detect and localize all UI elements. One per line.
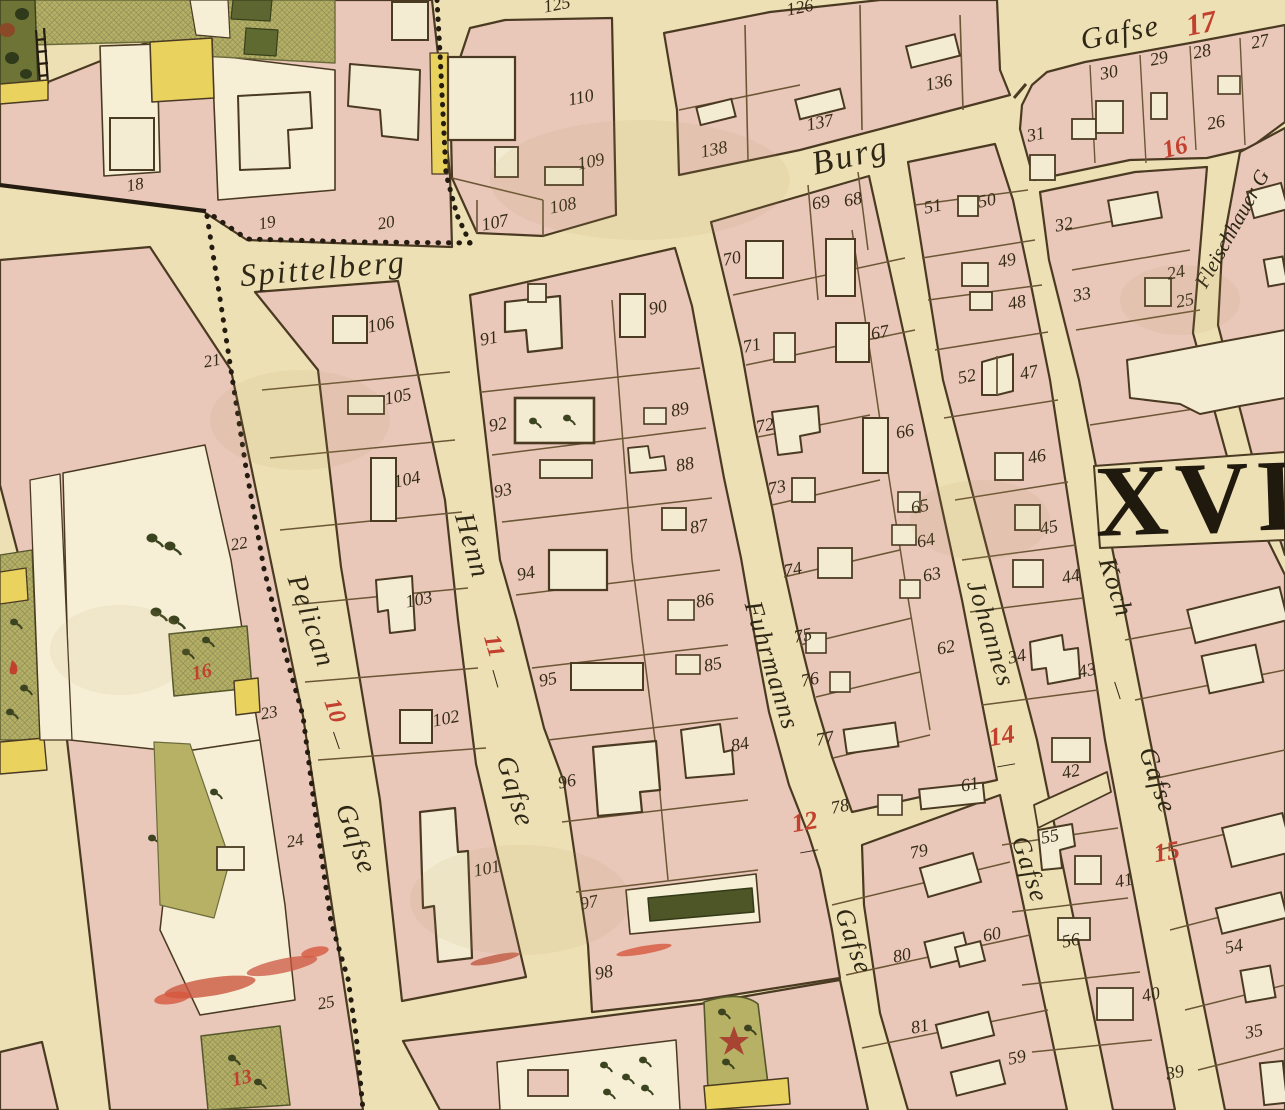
svg-text:31: 31 [1024, 123, 1046, 146]
svg-text:70: 70 [721, 247, 742, 270]
svg-text:75: 75 [792, 624, 813, 647]
svg-text:60: 60 [981, 923, 1002, 946]
svg-text:XVI: XVI [1093, 439, 1285, 559]
svg-text:—: — [797, 838, 820, 863]
svg-text:14: 14 [986, 719, 1017, 752]
svg-text:32: 32 [1052, 213, 1074, 236]
svg-text:33: 33 [1070, 283, 1092, 306]
svg-text:85: 85 [702, 653, 723, 676]
svg-text:61: 61 [959, 773, 980, 796]
svg-text:48: 48 [1006, 291, 1027, 314]
svg-text:35: 35 [1242, 1020, 1264, 1043]
svg-text:76: 76 [799, 668, 820, 691]
svg-text:25: 25 [316, 992, 336, 1014]
svg-text:42: 42 [1060, 760, 1081, 783]
svg-text:89: 89 [669, 398, 690, 421]
svg-text:50: 50 [976, 189, 997, 212]
svg-text:79: 79 [908, 840, 929, 863]
svg-text:12: 12 [789, 805, 820, 838]
svg-text:59: 59 [1006, 1046, 1027, 1069]
svg-text:95: 95 [537, 668, 558, 691]
svg-text:68: 68 [842, 188, 863, 211]
svg-text:43: 43 [1076, 659, 1097, 682]
svg-text:98: 98 [593, 961, 614, 984]
svg-text:69: 69 [810, 191, 831, 214]
svg-text:41: 41 [1113, 869, 1134, 892]
svg-text:40: 40 [1140, 983, 1161, 1006]
svg-text:46: 46 [1026, 445, 1047, 468]
svg-text:62: 62 [935, 636, 956, 659]
svg-text:30: 30 [1097, 61, 1119, 84]
svg-text:72: 72 [754, 414, 775, 437]
svg-text:90: 90 [647, 296, 668, 319]
svg-text:80: 80 [891, 944, 912, 967]
svg-text:23: 23 [259, 702, 279, 724]
svg-text:52: 52 [956, 365, 977, 388]
svg-text:71: 71 [741, 334, 762, 357]
svg-text:92: 92 [487, 413, 508, 436]
svg-text:73: 73 [766, 476, 787, 499]
svg-text:91: 91 [478, 327, 499, 350]
svg-text:56: 56 [1060, 929, 1081, 952]
svg-text:66: 66 [894, 420, 915, 443]
svg-text:93: 93 [492, 479, 513, 502]
svg-text:88: 88 [674, 453, 695, 476]
svg-text:78: 78 [829, 795, 850, 818]
svg-text:63: 63 [921, 563, 942, 586]
svg-text:49: 49 [996, 249, 1017, 272]
svg-text:39: 39 [1163, 1061, 1185, 1084]
svg-text:29: 29 [1148, 47, 1169, 70]
svg-text:51: 51 [922, 195, 943, 218]
svg-text:86: 86 [694, 589, 715, 612]
svg-text:54: 54 [1223, 935, 1244, 958]
svg-text:28: 28 [1191, 40, 1212, 63]
svg-text:81: 81 [909, 1015, 930, 1038]
svg-text:84: 84 [729, 733, 750, 756]
svg-text:55: 55 [1039, 825, 1060, 848]
svg-text:26: 26 [1205, 111, 1226, 134]
svg-text:21: 21 [202, 350, 222, 372]
svg-text:96: 96 [556, 770, 577, 793]
svg-text:44: 44 [1060, 565, 1081, 588]
svg-text:—: — [994, 752, 1017, 777]
svg-text:74: 74 [782, 558, 803, 581]
svg-text:15: 15 [1151, 835, 1182, 868]
svg-text:94: 94 [515, 562, 536, 585]
